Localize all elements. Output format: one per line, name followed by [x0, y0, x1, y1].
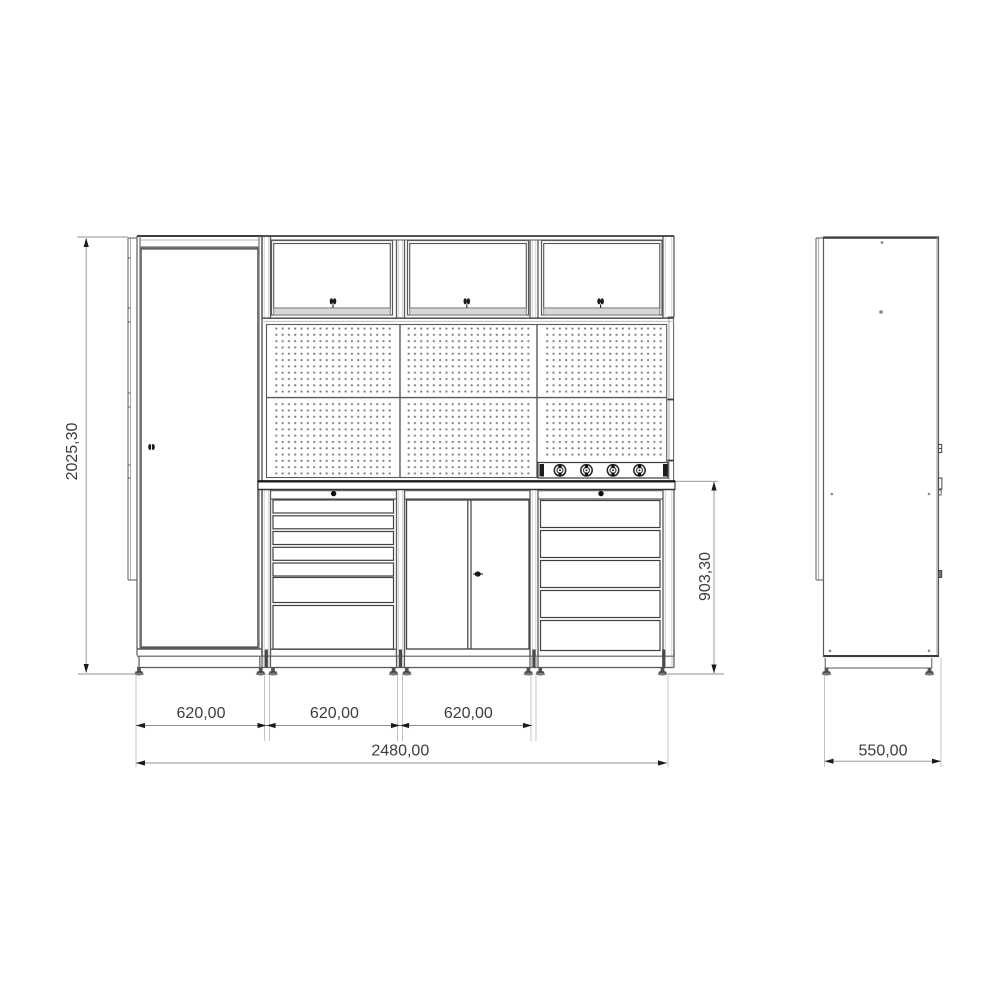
- svg-text:620,00: 620,00: [444, 705, 493, 722]
- svg-text:2480,00: 2480,00: [371, 742, 429, 759]
- svg-text:903,30: 903,30: [697, 552, 714, 601]
- svg-text:2025,30: 2025,30: [64, 422, 81, 480]
- svg-text:620,00: 620,00: [177, 705, 226, 722]
- svg-text:620,00: 620,00: [310, 705, 359, 722]
- svg-text:550,00: 550,00: [859, 743, 908, 760]
